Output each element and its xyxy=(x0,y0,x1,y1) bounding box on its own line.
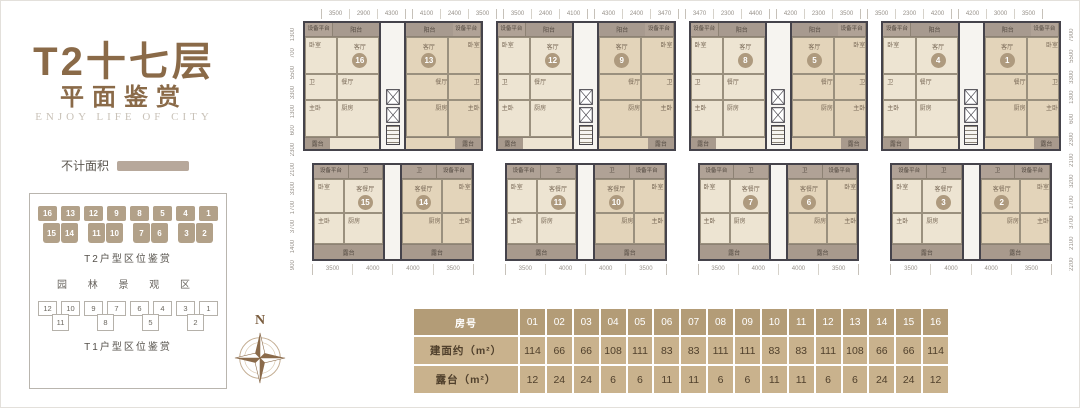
dimension-value: 5500 xyxy=(1069,46,1075,67)
dimension-value: 4000 xyxy=(738,264,778,275)
bedroom-label: 卧室 xyxy=(498,37,530,74)
terrace-chip: 露台 xyxy=(1034,138,1059,149)
unit-rooms: 卧室客餐厅14主卧厨房 xyxy=(402,179,471,244)
stairs-icon xyxy=(386,125,400,145)
balcony-label: 阳台 xyxy=(526,23,572,36)
room-number-cell: 01 xyxy=(520,309,545,335)
dimension-value: 4000 xyxy=(352,264,392,275)
master-bedroom-label: 主卧 xyxy=(1027,100,1059,137)
elevator-icon xyxy=(771,107,785,123)
dimension-group: 420023003500 xyxy=(776,9,861,19)
dimension-value: 3500 xyxy=(504,9,531,19)
living-room: 客厅8 xyxy=(723,37,765,74)
bedroom-label: 卧室 xyxy=(314,179,344,213)
unit-rooms: 卧室客厅13卫餐厅主卧厨房 xyxy=(406,37,480,137)
kitchen-label: 厨房 xyxy=(985,100,1027,137)
bedroom-label: 卧室 xyxy=(1027,37,1059,74)
dimension-value: 1700 xyxy=(1069,192,1075,213)
master-bedroom-label: 主卧 xyxy=(641,100,673,137)
unit-rooms: 卧室客厅1卫餐厅主卧厨房 xyxy=(985,37,1059,137)
kitchen-label: 厨房 xyxy=(337,100,379,137)
top-dimension-strip: 3500290043004100240035003500240041004300… xyxy=(321,9,1043,19)
bath-label: 卫 xyxy=(305,74,337,99)
living-label: 客厅 xyxy=(739,42,751,51)
unit-rooms: 卧室客餐厅7主卧厨房 xyxy=(700,179,769,244)
kitchen-label: 厨房 xyxy=(730,213,769,244)
living-dining-label: 客餐厅 xyxy=(549,184,567,193)
unit-top-strip: 设备平台卫 xyxy=(892,165,961,179)
table-row-label: 建面约（m²） xyxy=(414,337,518,364)
dimension-value: 4000 xyxy=(585,264,625,275)
table-row-label: 露台（m²） xyxy=(414,366,518,393)
unit-number: 4 xyxy=(931,53,946,68)
dimension-value: 600 xyxy=(1069,108,1075,129)
unit-rooms: 卧室客餐厅15主卧厨房 xyxy=(314,179,383,244)
living-dining-label: 客餐厅 xyxy=(607,184,625,193)
terrace-cell: 6 xyxy=(843,366,868,393)
dimension-value: 3500 xyxy=(699,264,738,275)
terrace-cell: 6 xyxy=(601,366,626,393)
bottom-dimension-strip: 3500400040003500 xyxy=(312,264,474,275)
room-number-cell: 08 xyxy=(708,309,733,335)
room-number-cell: 07 xyxy=(681,309,706,335)
terrace-strip: 露台 xyxy=(402,244,471,259)
bottom-unit-block: 设备平台卫卧室客餐厅11主卧厨房露台设备平台卫卧室客餐厅10主卧厨房露台3500… xyxy=(496,163,676,275)
master-bedroom-label: 主卧 xyxy=(442,213,472,244)
bottom-unit-pair: 设备平台卫卧室客餐厅11主卧厨房露台设备平台卫卧室客餐厅10主卧厨房露台 xyxy=(505,163,667,261)
dimension-value: 4200 xyxy=(923,9,951,19)
t2-unit-chip: 2 xyxy=(196,223,213,243)
top-unit-block: 设备平台阳台卧室客厅16卫餐厅主卧厨房露台设备平台阳台卧室客厅13卫餐厅主卧厨房… xyxy=(303,21,483,151)
unit-8: 设备平台阳台卧室客厅8卫餐厅主卧厨房露台 xyxy=(689,21,767,151)
balcony-label: 阳台 xyxy=(792,23,838,36)
unit-bottom-strip: 露台 xyxy=(599,137,673,149)
dimension-value: 3500 xyxy=(625,264,665,275)
dimension-value: 2100 xyxy=(290,160,296,179)
dimension-value: 5500 xyxy=(290,63,296,82)
dining-label: 餐厅 xyxy=(792,74,834,99)
dimension-value: 3500 xyxy=(832,9,860,19)
unit-rooms: 卧室客餐厅10主卧厨房 xyxy=(595,179,664,244)
terrace-cell: 12 xyxy=(520,366,545,393)
t2-unit-chip: 1 xyxy=(199,206,218,221)
kitchen-label: 厨房 xyxy=(402,213,441,244)
equipment-platform-label: 设备平台 xyxy=(507,165,542,178)
equipment-platform-label: 设备平台 xyxy=(823,165,858,178)
terrace-strip: 露台 xyxy=(892,244,961,259)
unit-2: 设备平台卫卧室客餐厅2主卧厨房露台 xyxy=(979,163,1052,261)
living-label: 客厅 xyxy=(808,42,820,51)
elevator-icon xyxy=(964,107,978,123)
area-cell: 66 xyxy=(547,337,572,364)
unit-number: 3 xyxy=(936,195,951,210)
equipment-platform-label: 设备平台 xyxy=(1015,165,1050,178)
dimension-value: 3500 xyxy=(891,264,930,275)
dimension-value: 3300 xyxy=(290,83,296,102)
master-bedroom-label: 主卧 xyxy=(305,100,337,137)
terrace-cell: 24 xyxy=(869,366,894,393)
dining-label: 餐厅 xyxy=(337,74,379,99)
unit-number: 9 xyxy=(614,53,629,68)
living-dining-room: 客餐厅15 xyxy=(344,179,383,213)
bedroom-label: 卧室 xyxy=(634,179,664,213)
unit-rooms: 卧室客餐厅2主卧厨房 xyxy=(981,179,1050,244)
master-bedroom-label: 主卧 xyxy=(834,100,866,137)
room-number-cell: 02 xyxy=(547,309,572,335)
poster-canvas: T2十七层 平面鉴赏 ENJOY LIFE OF CITY 不计面积 16131… xyxy=(0,0,1080,408)
top-unit-block: 设备平台阳台卧室客厅12卫餐厅主卧厨房露台设备平台阳台卧室客厅9卫餐厅主卧厨房露… xyxy=(496,21,676,151)
bath-chip: 卫 xyxy=(788,165,823,178)
dimension-value: 2300 xyxy=(895,9,923,19)
dimension-value: 3500 xyxy=(313,264,352,275)
compass-north-label: N xyxy=(229,313,291,329)
bottom-unit-block: 设备平台卫卧室客餐厅3主卧厨房露台设备平台卫卧室客餐厅2主卧厨房露台350040… xyxy=(881,163,1061,275)
dimension-value: 4300 xyxy=(377,9,405,19)
unit-top-strip: 设备平台阳台 xyxy=(498,23,572,37)
dimension-value: 2400 xyxy=(622,9,650,19)
dimension-value: 3500 xyxy=(1011,264,1051,275)
terrace-cell: 24 xyxy=(547,366,572,393)
balcony-label: 阳台 xyxy=(333,23,379,36)
living-label: 客厅 xyxy=(616,42,628,51)
area-cell: 111 xyxy=(735,337,760,364)
bath-label: 卫 xyxy=(1027,74,1059,99)
t2-unit-chip: 12 xyxy=(84,206,103,221)
plan-bottom-row: 设备平台卫卧室客餐厅15主卧厨房露台设备平台卫卧室客餐厅14主卧厨房露台3500… xyxy=(303,163,1061,275)
elevator-stair-core xyxy=(771,163,786,261)
unit-rooms: 卧室客厅4卫餐厅主卧厨房 xyxy=(883,37,957,137)
plan-top-row: 设备平台阳台卧室客厅16卫餐厅主卧厨房露台设备平台阳台卧室客厅13卫餐厅主卧厨房… xyxy=(303,21,1061,151)
bedroom-label: 卧室 xyxy=(448,37,480,74)
bottom-unit-block: 设备平台卫卧室客餐厅7主卧厨房露台设备平台卫卧室客餐厅6主卧厨房露台350040… xyxy=(689,163,869,275)
bedroom-label: 卧室 xyxy=(641,37,673,74)
t2-locator-top-row: 16131298541 xyxy=(38,206,218,221)
terrace-chip: 露台 xyxy=(305,138,330,149)
unit-9: 设备平台阳台卧室客厅9卫餐厅主卧厨房露台 xyxy=(597,21,675,151)
living-label: 客厅 xyxy=(547,42,559,51)
area-cell: 83 xyxy=(762,337,787,364)
area-cell: 111 xyxy=(816,337,841,364)
unit-6: 设备平台卫卧室客餐厅6主卧厨房露台 xyxy=(786,163,859,261)
equipment-platform-label: 设备平台 xyxy=(453,23,481,36)
dimension-value: 3300 xyxy=(290,179,296,198)
dimension-value: 2100 xyxy=(1069,150,1075,171)
equipment-platform-label: 设备平台 xyxy=(883,23,911,36)
bedroom-label: 卧室 xyxy=(507,179,537,213)
unit-top-strip: 设备平台阳台 xyxy=(792,23,866,37)
dimension-value: 1300 xyxy=(290,25,296,44)
bath-chip: 卫 xyxy=(981,165,1016,178)
bedroom-label: 卧室 xyxy=(883,37,915,74)
bottom-unit-pair: 设备平台卫卧室客餐厅3主卧厨房露台设备平台卫卧室客餐厅2主卧厨房露台 xyxy=(890,163,1052,261)
table-row-label: 房号 xyxy=(414,309,518,335)
stairs-icon xyxy=(964,125,978,145)
master-bedroom-label: 主卧 xyxy=(691,100,723,137)
equipment-platform-label: 设备平台 xyxy=(630,165,665,178)
bedroom-label: 卧室 xyxy=(700,179,730,213)
right-dimension-strip: 7900550033001300600230021003200170037002… xyxy=(1066,25,1077,275)
unit-number: 2 xyxy=(994,195,1009,210)
dimension-value: 3470 xyxy=(650,9,678,19)
dimension-value: 2100 xyxy=(1069,233,1075,254)
master-bedroom-label: 主卧 xyxy=(827,213,857,244)
bottom-dimension-strip: 3500400040003500 xyxy=(890,264,1052,275)
equipment-platform-label: 设备平台 xyxy=(892,165,927,178)
living-room: 客厅4 xyxy=(916,37,958,74)
unit-rooms: 卧室客餐厅6主卧厨房 xyxy=(788,179,857,244)
living-label: 客厅 xyxy=(423,42,435,51)
elevator-stair-core xyxy=(385,163,400,261)
dimension-value: 2300 xyxy=(290,140,296,159)
t1-unit-box: 11 xyxy=(52,314,69,331)
dimension-value: 3200 xyxy=(1069,171,1075,192)
terrace-cell: 6 xyxy=(735,366,760,393)
room-number-cell: 14 xyxy=(869,309,894,335)
floor-plan: 3500290043004100240035003500240041004300… xyxy=(287,3,1077,305)
dimension-value: 3500 xyxy=(433,264,473,275)
dimension-value: 3700 xyxy=(1069,212,1075,233)
room-number-cell: 15 xyxy=(896,309,921,335)
living-room: 客厅12 xyxy=(530,37,572,74)
dimension-value: 3700 xyxy=(290,217,296,236)
unit-rooms: 卧室客餐厅11主卧厨房 xyxy=(507,179,576,244)
unit-3: 设备平台卫卧室客餐厅3主卧厨房露台 xyxy=(890,163,963,261)
terrace-strip: 露台 xyxy=(981,244,1050,259)
unit-top-strip: 设备平台卫 xyxy=(402,165,471,179)
unit-number: 11 xyxy=(551,195,566,210)
dimension-value: 4000 xyxy=(930,264,970,275)
bath-chip: 卫 xyxy=(541,165,576,178)
living-room: 客厅13 xyxy=(406,37,448,74)
equipment-platform-label: 设备平台 xyxy=(498,23,526,36)
bottom-dimension-strip: 3500400040003500 xyxy=(698,264,860,275)
unit-13: 设备平台阳台卧室客厅13卫餐厅主卧厨房露台 xyxy=(404,21,482,151)
terrace-chip: 露台 xyxy=(455,138,480,149)
unit-top-strip: 设备平台卫 xyxy=(981,165,1050,179)
unit-bottom-strip: 露台 xyxy=(792,137,866,149)
terrace-cell: 11 xyxy=(654,366,679,393)
t2-unit-chip: 15 xyxy=(43,223,60,243)
stairs-icon xyxy=(771,125,785,145)
t2-unit-chip: 4 xyxy=(176,206,195,221)
living-dining-room: 客餐厅7 xyxy=(730,179,769,213)
left-dimension-strip: 1300700550033001300600230021003300170037… xyxy=(287,25,298,275)
balcony-label: 阳台 xyxy=(599,23,645,36)
living-label: 客厅 xyxy=(1001,42,1013,51)
unit-rooms: 卧室客厅12卫餐厅主卧厨房 xyxy=(498,37,572,137)
room-number-cell: 05 xyxy=(628,309,653,335)
master-bedroom-label: 主卧 xyxy=(448,100,480,137)
living-dining-label: 客餐厅 xyxy=(800,184,818,193)
terrace-cell: 12 xyxy=(923,366,948,393)
equipment-platform-label: 设备平台 xyxy=(700,165,735,178)
english-tagline: ENJOY LIFE OF CITY xyxy=(19,111,229,123)
living-dining-label: 客餐厅 xyxy=(742,184,760,193)
unit-rooms: 卧室客厅5卫餐厅主卧厨房 xyxy=(792,37,866,137)
legend-swatch xyxy=(117,161,189,171)
t1-unit-box: 2 xyxy=(187,314,204,331)
dimension-value: 3470 xyxy=(686,9,713,19)
unit-number: 5 xyxy=(807,53,822,68)
bath-label: 卫 xyxy=(498,74,530,99)
unit-top-strip: 设备平台阳台 xyxy=(599,23,673,37)
dimension-value: 4400 xyxy=(741,9,769,19)
dimension-value: 2300 xyxy=(713,9,741,19)
balcony-label: 阳台 xyxy=(911,23,957,36)
page-subtitle: 平面鉴赏 xyxy=(19,77,229,112)
unit-1: 设备平台阳台卧室客厅1卫餐厅主卧厨房露台 xyxy=(983,21,1061,151)
top-unit-block: 设备平台阳台卧室客厅8卫餐厅主卧厨房露台设备平台阳台卧室客厅5卫餐厅主卧厨房露台 xyxy=(689,21,869,151)
bottom-unit-pair: 设备平台卫卧室客餐厅7主卧厨房露台设备平台卫卧室客餐厅6主卧厨房露台 xyxy=(698,163,860,261)
bedroom-label: 卧室 xyxy=(1020,179,1050,213)
unit-number: 10 xyxy=(609,195,624,210)
living-dining-label: 客餐厅 xyxy=(356,184,374,193)
living-dining-room: 客餐厅10 xyxy=(595,179,634,213)
kitchen-label: 厨房 xyxy=(530,100,572,137)
living-dining-label: 客餐厅 xyxy=(935,184,953,193)
bedroom-label: 卧室 xyxy=(691,37,723,74)
t2-locator-bottom-row: 151411107632 xyxy=(38,223,218,243)
dimension-value: 2900 xyxy=(349,9,377,19)
bottom-unit-block: 设备平台卫卧室客餐厅15主卧厨房露台设备平台卫卧室客餐厅14主卧厨房露台3500… xyxy=(303,163,483,275)
living-dining-room: 客餐厅14 xyxy=(402,179,441,213)
elevator-icon xyxy=(579,107,593,123)
unit-15: 设备平台卫卧室客餐厅15主卧厨房露台 xyxy=(312,163,385,261)
t1-unit-box: 5 xyxy=(142,314,159,331)
elevator-icon xyxy=(386,89,400,105)
t2-unit-pair: 1110 xyxy=(88,223,123,243)
unit-top-strip: 设备平台卫 xyxy=(788,165,857,179)
area-cell: 66 xyxy=(869,337,894,364)
unit-number: 8 xyxy=(738,53,753,68)
area-cell: 114 xyxy=(923,337,948,364)
dimension-value: 4000 xyxy=(778,264,818,275)
dimension-value: 4000 xyxy=(392,264,432,275)
dimension-value: 4200 xyxy=(959,9,986,19)
unit-number: 15 xyxy=(358,195,373,210)
dimension-value: 4200 xyxy=(777,9,804,19)
terrace-strip: 露台 xyxy=(507,244,576,259)
bottom-dimension-strip: 3500400040003500 xyxy=(505,264,667,275)
legend-label: 不计面积 xyxy=(61,157,109,174)
equipment-platform-label: 设备平台 xyxy=(305,23,333,36)
unit-bottom-strip: 露台 xyxy=(691,137,765,149)
master-bedroom-label: 主卧 xyxy=(892,213,922,244)
unit-top-strip: 设备平台卫 xyxy=(314,165,383,179)
bath-label: 卫 xyxy=(641,74,673,99)
elevator-stair-core xyxy=(578,163,593,261)
dimension-value: 2300 xyxy=(1069,129,1075,150)
room-number-cell: 09 xyxy=(735,309,760,335)
room-number-cell: 11 xyxy=(789,309,814,335)
elevator-stair-core xyxy=(964,163,979,261)
dimension-value: 700 xyxy=(290,44,296,63)
dimension-value: 2300 xyxy=(804,9,832,19)
elevator-stair-core xyxy=(767,21,790,151)
equipment-platform-label: 设备平台 xyxy=(645,23,673,36)
room-number-cell: 10 xyxy=(762,309,787,335)
t1-locator: 1210976431 11852 xyxy=(38,301,218,331)
dimension-value: 3000 xyxy=(986,9,1014,19)
kitchen-label: 厨房 xyxy=(788,213,827,244)
terrace-cell: 6 xyxy=(628,366,653,393)
dimension-group: 410024003500 xyxy=(412,9,497,19)
dimension-value: 2200 xyxy=(1069,254,1075,275)
bath-label: 卫 xyxy=(448,74,480,99)
living-dining-label: 客餐厅 xyxy=(993,184,1011,193)
t2-unit-pair: 76 xyxy=(133,223,168,243)
room-number-cell: 03 xyxy=(574,309,599,335)
area-cell: 83 xyxy=(681,337,706,364)
bedroom-label: 卧室 xyxy=(305,37,337,74)
unit-top-strip: 设备平台阳台 xyxy=(985,23,1059,37)
t2-unit-chip: 6 xyxy=(151,223,168,243)
t1-locator-caption: T1户型区位鉴赏 xyxy=(38,338,218,353)
dimension-group: 420030003500 xyxy=(958,9,1043,19)
elevator-icon xyxy=(771,89,785,105)
dining-label: 餐厅 xyxy=(406,74,448,99)
dimension-group: 350024004100 xyxy=(503,9,588,19)
kitchen-label: 厨房 xyxy=(537,213,576,244)
bedroom-label: 卧室 xyxy=(892,179,922,213)
kitchen-label: 厨房 xyxy=(981,213,1020,244)
living-dining-label: 客餐厅 xyxy=(414,184,432,193)
dimension-value: 4100 xyxy=(413,9,440,19)
t2-unit-chip: 13 xyxy=(61,206,80,221)
unit-rooms: 卧室客厅8卫餐厅主卧厨房 xyxy=(691,37,765,137)
terrace-cell: 11 xyxy=(681,366,706,393)
bath-chip: 卫 xyxy=(402,165,437,178)
kitchen-label: 厨房 xyxy=(916,100,958,137)
terrace-cell: 24 xyxy=(896,366,921,393)
dining-label: 餐厅 xyxy=(599,74,641,99)
unit-5: 设备平台阳台卧室客厅5卫餐厅主卧厨房露台 xyxy=(790,21,868,151)
terrace-strip: 露台 xyxy=(700,244,769,259)
unit-12: 设备平台阳台卧室客厅12卫餐厅主卧厨房露台 xyxy=(496,21,574,151)
elevator-icon xyxy=(579,89,593,105)
unit-rooms: 卧室客餐厅3主卧厨房 xyxy=(892,179,961,244)
unit-number: 12 xyxy=(545,53,560,68)
bath-chip: 卫 xyxy=(349,165,384,178)
living-room: 客厅1 xyxy=(985,37,1027,74)
room-number-cell: 12 xyxy=(816,309,841,335)
t2-unit-chip: 8 xyxy=(130,206,149,221)
kitchen-label: 厨房 xyxy=(922,213,961,244)
unit-16: 设备平台阳台卧室客厅16卫餐厅主卧厨房露台 xyxy=(303,21,381,151)
unit-bottom-strip: 露台 xyxy=(498,137,572,149)
unit-number: 1 xyxy=(1000,53,1015,68)
t2-unit-chip: 14 xyxy=(61,223,78,243)
living-dining-room: 客餐厅6 xyxy=(788,179,827,213)
master-bedroom-label: 主卧 xyxy=(498,100,530,137)
master-bedroom-label: 主卧 xyxy=(314,213,344,244)
terrace-chip: 露台 xyxy=(883,138,908,149)
master-bedroom-label: 主卧 xyxy=(883,100,915,137)
dimension-value: 4300 xyxy=(595,9,622,19)
unit-top-strip: 设备平台卫 xyxy=(700,165,769,179)
kitchen-label: 厨房 xyxy=(406,100,448,137)
area-cell: 111 xyxy=(628,337,653,364)
legend: 不计面积 xyxy=(61,157,189,174)
elevator-icon xyxy=(964,89,978,105)
living-room: 客厅16 xyxy=(337,37,379,74)
unit-bottom-strip: 露台 xyxy=(406,137,480,149)
dimension-group: 347023004400 xyxy=(685,9,770,19)
t2-unit-chip: 11 xyxy=(88,223,105,243)
dimension-value: 4000 xyxy=(545,264,585,275)
area-cell: 83 xyxy=(789,337,814,364)
dimension-value: 2400 xyxy=(440,9,468,19)
